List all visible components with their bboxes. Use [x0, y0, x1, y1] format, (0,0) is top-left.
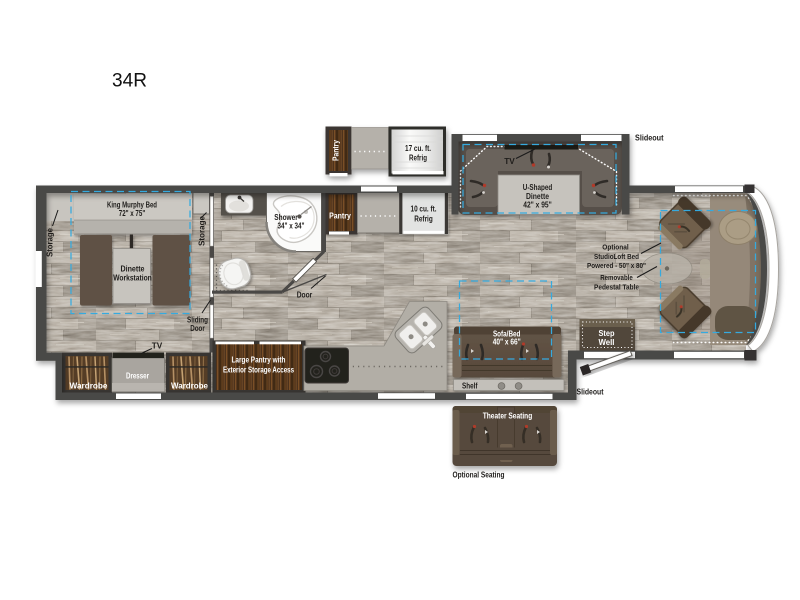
- svg-text:34R: 34R: [112, 70, 147, 92]
- svg-text:10 cu. ft.: 10 cu. ft.: [411, 204, 437, 214]
- svg-text:TV: TV: [152, 341, 163, 351]
- svg-text:17 cu. ft.: 17 cu. ft.: [405, 143, 431, 153]
- svg-text:Pantry: Pantry: [331, 140, 341, 161]
- svg-text:Shelf: Shelf: [462, 381, 478, 391]
- svg-text:Removable: Removable: [600, 273, 633, 282]
- svg-text:Optional Seating: Optional Seating: [453, 470, 505, 480]
- svg-text:Storage: Storage: [45, 228, 55, 257]
- svg-text:Refrig: Refrig: [414, 214, 433, 224]
- svg-text:TV: TV: [504, 156, 515, 166]
- svg-text:Large Pantry with: Large Pantry with: [232, 355, 286, 365]
- svg-text:Wardrobe: Wardrobe: [70, 381, 108, 391]
- svg-text:34" x 34": 34" x 34": [278, 220, 305, 230]
- svg-text:Powered - 50" x 80": Powered - 50" x 80": [587, 261, 646, 270]
- svg-text:Storage: Storage: [197, 216, 207, 246]
- svg-text:Wardrobe: Wardrobe: [171, 381, 208, 391]
- svg-text:Theater Seating: Theater Seating: [483, 411, 533, 421]
- svg-text:Optional: Optional: [602, 243, 629, 252]
- svg-text:42" x 95": 42" x 95": [523, 200, 552, 210]
- svg-text:Dresser: Dresser: [126, 371, 150, 381]
- svg-text:Refrig: Refrig: [409, 153, 427, 163]
- svg-text:Pedestal Table: Pedestal Table: [594, 283, 639, 292]
- svg-text:StudioLoft Bed: StudioLoft Bed: [594, 252, 639, 261]
- svg-text:40" x 66": 40" x 66": [493, 337, 521, 347]
- svg-text:Pantry: Pantry: [329, 211, 351, 221]
- svg-text:72" x 75": 72" x 75": [119, 208, 146, 218]
- svg-text:Slideout: Slideout: [577, 387, 604, 397]
- svg-text:Well: Well: [599, 337, 615, 347]
- svg-text:Exterior Storage Access: Exterior Storage Access: [223, 365, 294, 375]
- svg-text:Slideout: Slideout: [635, 133, 664, 143]
- svg-text:Door: Door: [297, 290, 313, 300]
- svg-text:Door: Door: [190, 323, 205, 333]
- svg-text:Workstation: Workstation: [113, 273, 152, 283]
